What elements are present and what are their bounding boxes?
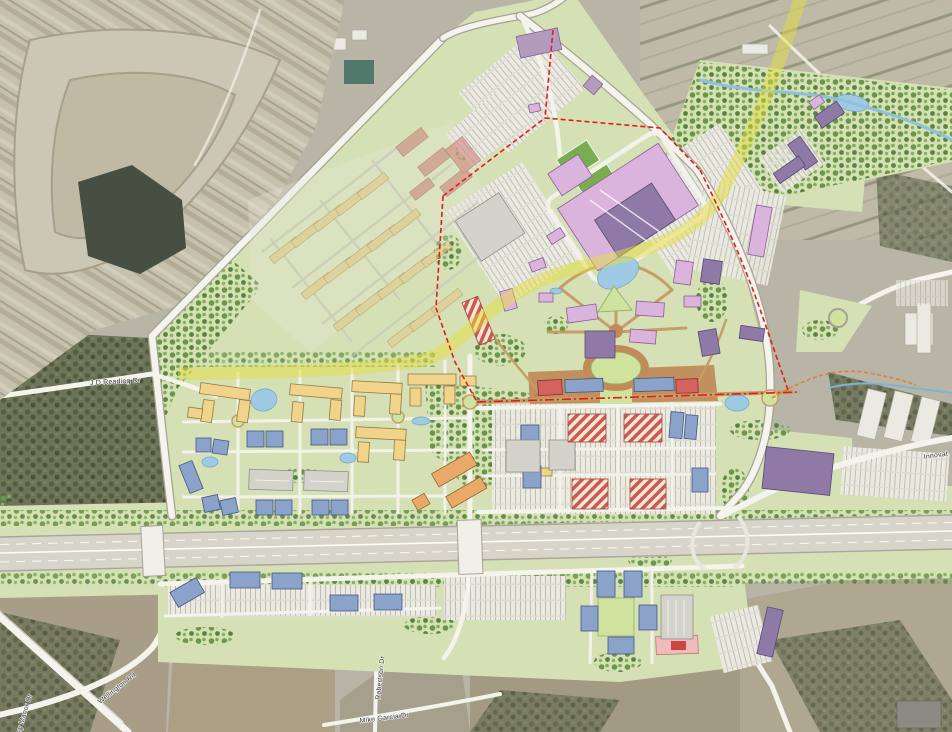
site-plan-map: J D Reading Dr Wellington Rd Sudley Mano…: [0, 0, 952, 732]
map-canvas: J D Reading Dr Wellington Rd Sudley Mano…: [0, 0, 952, 732]
